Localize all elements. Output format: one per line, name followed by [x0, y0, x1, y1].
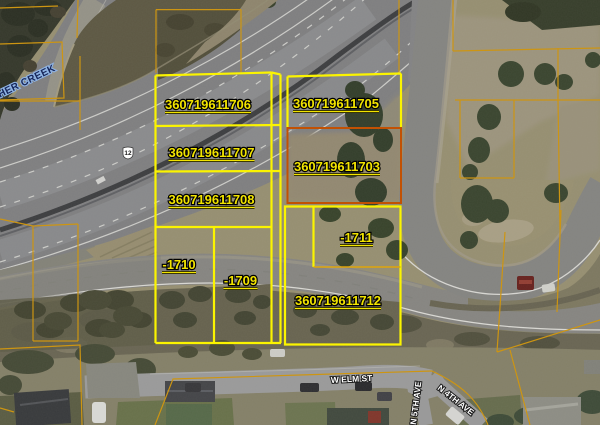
svg-text:-1710: -1710: [162, 257, 195, 272]
svg-text:360719611708: 360719611708: [168, 192, 254, 207]
svg-text:360719611703: 360719611703: [294, 159, 380, 174]
svg-text:-1711: -1711: [340, 230, 373, 245]
svg-text:360719611712: 360719611712: [295, 293, 381, 308]
svg-text:12: 12: [124, 150, 132, 157]
svg-text:360719611706: 360719611706: [165, 97, 251, 112]
svg-text:360719611705: 360719611705: [293, 96, 379, 111]
svg-text:-1709: -1709: [224, 273, 257, 288]
svg-text:360719611707: 360719611707: [168, 145, 254, 160]
